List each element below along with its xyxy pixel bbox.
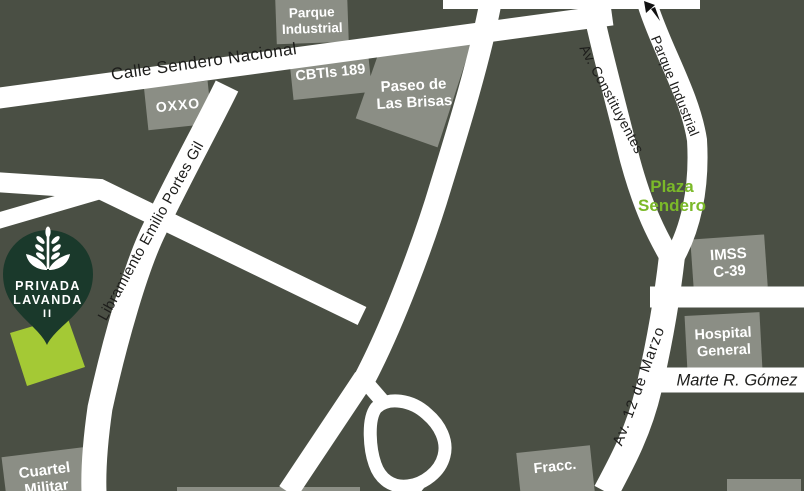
label-plaza-sendero: Plaza Sendero xyxy=(638,177,706,215)
label-plaza-sendero-line2: Sendero xyxy=(638,196,706,215)
road-central xyxy=(364,0,491,380)
pin-label-line1: PRIVADA xyxy=(1,279,95,293)
location-map: Parque Industrial OXXO CBTIs 189 Paseo d… xyxy=(0,0,804,491)
road-loop xyxy=(370,401,445,486)
road-calle-sendero-nacional xyxy=(0,15,612,99)
pin-label-line3: II xyxy=(1,307,95,321)
road-loop-exit xyxy=(410,485,420,491)
road-central-branch xyxy=(288,378,364,491)
label-marte-r-gomez: Marte R. Gómez xyxy=(676,372,797,391)
label-plaza-sendero-line1: Plaza xyxy=(638,177,706,196)
pin-label-line2: LAVANDA xyxy=(1,293,95,307)
pin-label: PRIVADA LAVANDA II xyxy=(1,279,95,321)
location-pin: PRIVADA LAVANDA II xyxy=(1,221,95,347)
